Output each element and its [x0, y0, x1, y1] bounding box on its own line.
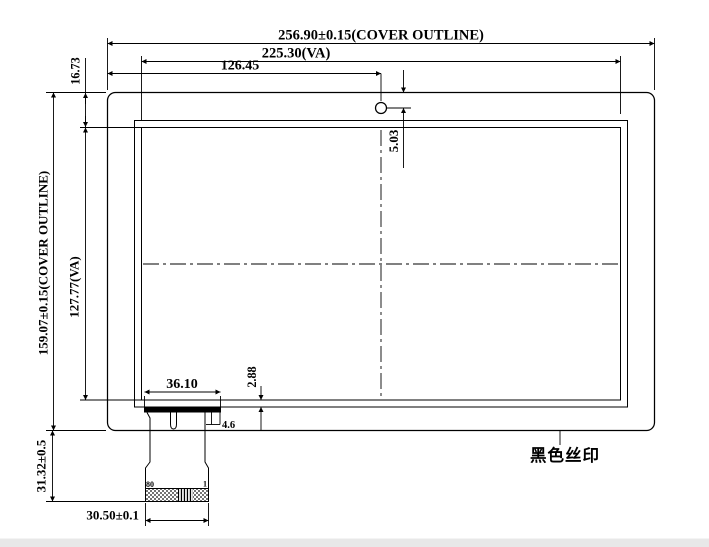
- dim-bonding-width: 36.10: [145, 377, 221, 407]
- dim-bonding-width-label: 36.10: [166, 377, 198, 392]
- dim-cover-width-label: 256.90±0.15(COVER OUTLINE): [278, 28, 484, 44]
- dim-hole-y: 5.03: [386, 70, 411, 168]
- dim-va-width-label: 225.30(VA): [262, 46, 331, 62]
- tail-right-edge: [205, 413, 209, 489]
- pin-number-start: 80: [146, 480, 154, 489]
- dim-top-margin-label: 16.73: [69, 57, 83, 84]
- tail-left-edge: [146, 413, 151, 489]
- dim-hole-y-label: 5.03: [386, 129, 401, 152]
- dim-va-height: 127.77(VA): [67, 128, 142, 401]
- footer-strip: [0, 539, 709, 547]
- dim-edge-gap-label: 2.88: [245, 366, 259, 387]
- technical-drawing-page: 80 1 256.90±0.15(COVER OUTLINE) 225.30(V…: [0, 0, 709, 547]
- fpc-tail: 80 1: [144, 407, 221, 502]
- tail-notch: [171, 413, 177, 430]
- panel-dimension-drawing: 80 1 256.90±0.15(COVER OUTLINE) 225.30(V…: [0, 0, 709, 547]
- dim-va-height-label: 127.77(VA): [67, 256, 82, 318]
- dim-step-width-label: 4.6: [222, 420, 235, 431]
- dim-hole-x-label: 126.45: [221, 59, 260, 74]
- dim-tail-length-label: 31.32±0.5: [34, 439, 49, 492]
- silkscreen-annotation: 黑色丝印: [530, 431, 600, 466]
- dim-step-width: 4.6: [206, 413, 235, 432]
- bonding-bar: [144, 407, 221, 413]
- connector-stiffener: [146, 489, 209, 502]
- silkscreen-label: 黑色丝印: [530, 445, 600, 465]
- dim-edge-gap: 2.88: [245, 366, 261, 430]
- connector-stiffener-stripes: [178, 489, 193, 501]
- dim-connector-width-label: 30.50±0.1: [86, 508, 139, 523]
- dim-tail-length: 31.32±0.5: [34, 431, 146, 502]
- dim-hole-x: 126.45: [108, 59, 382, 102]
- pin-number-end: 1: [203, 480, 207, 489]
- dim-connector-width: 30.50±0.1: [86, 503, 208, 526]
- dim-cover-height-label: 159.07±0.15(COVER OUTLINE): [36, 171, 51, 355]
- hole: [376, 103, 387, 114]
